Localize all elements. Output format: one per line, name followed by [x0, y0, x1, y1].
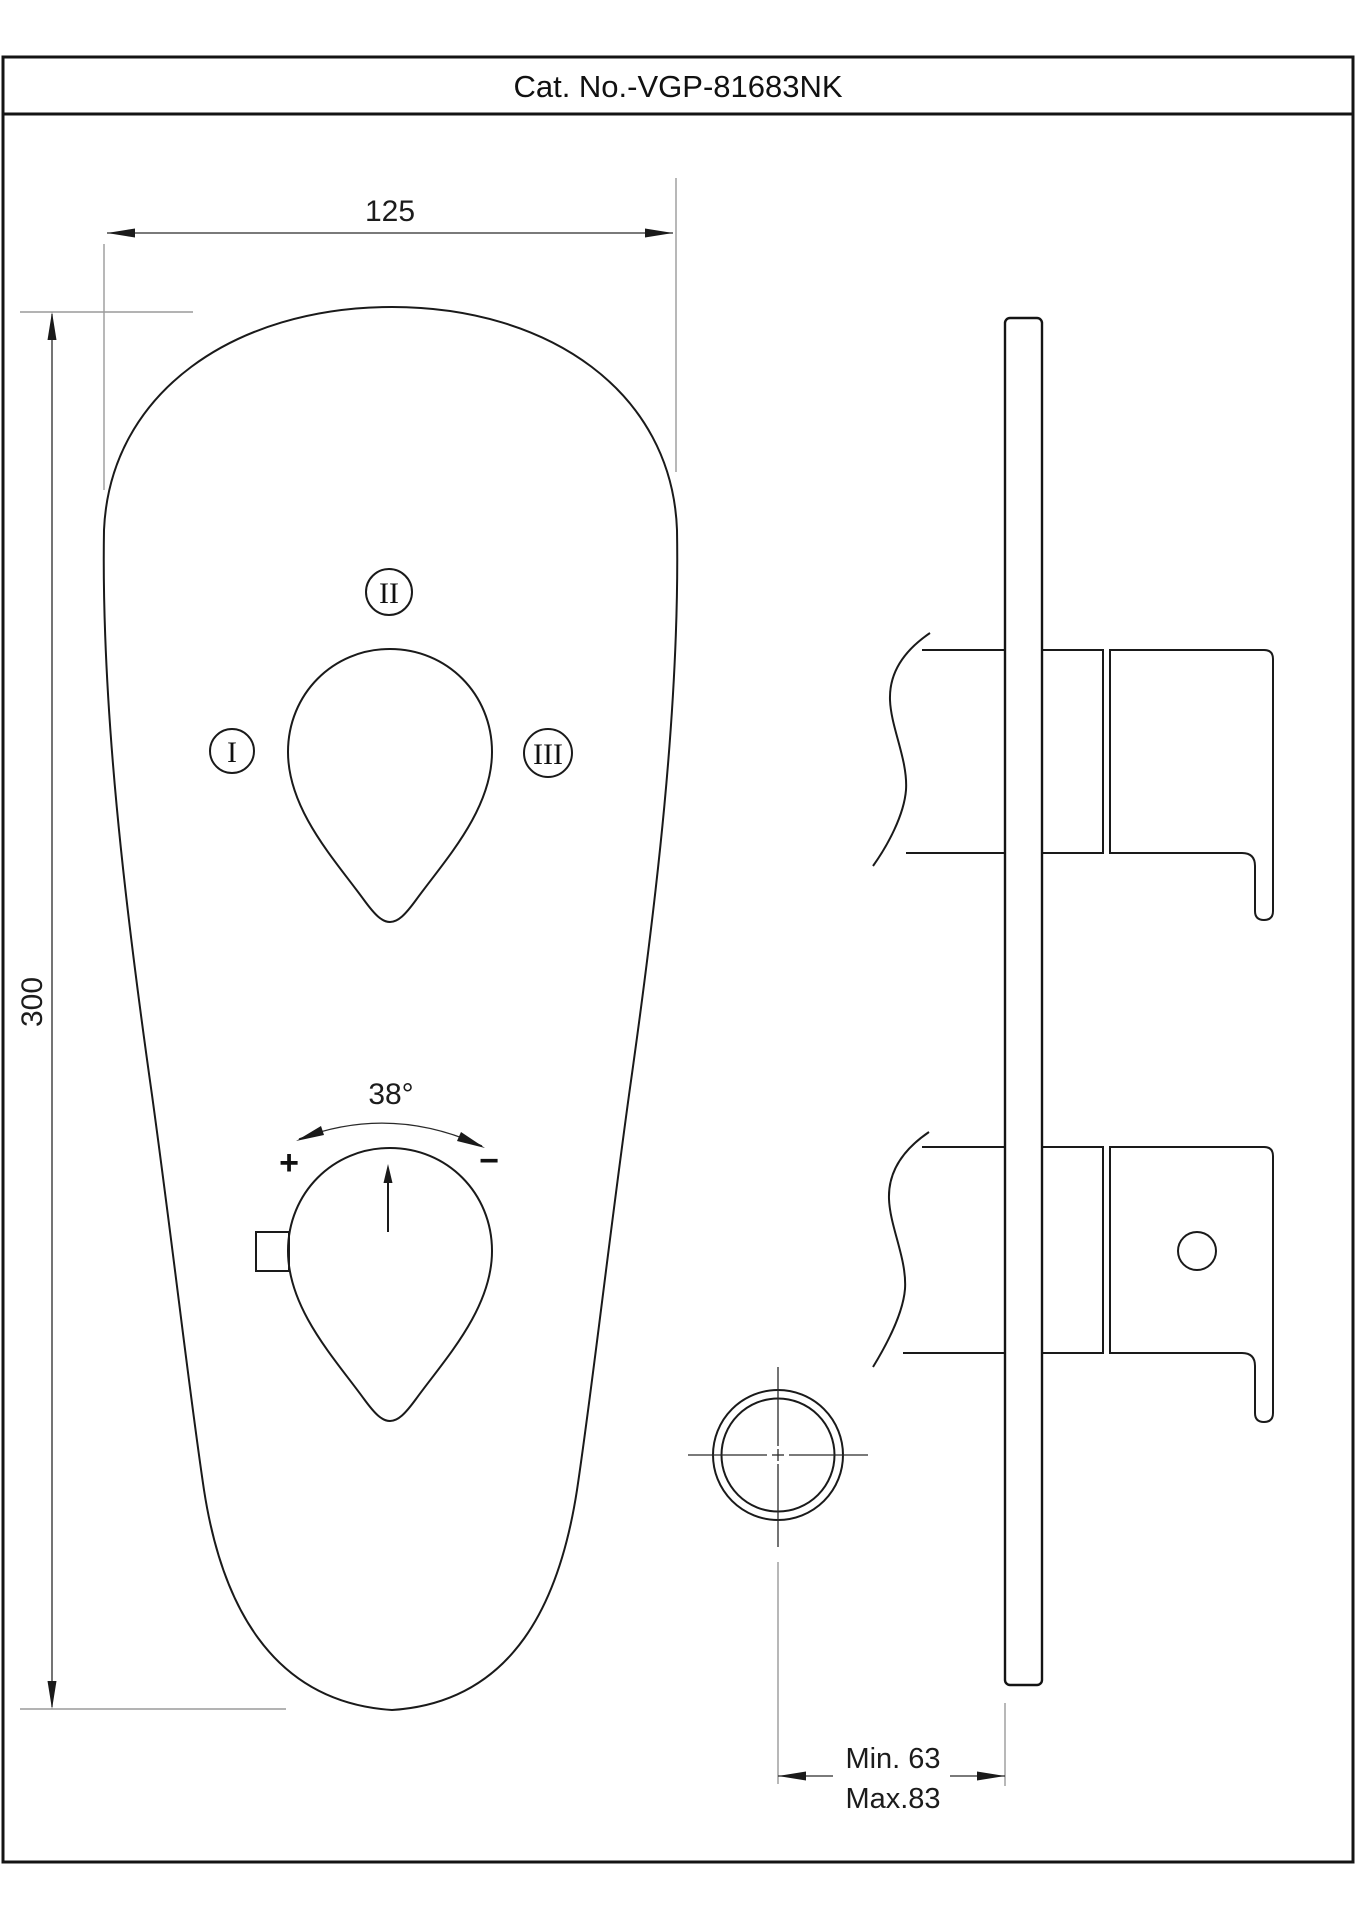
front-view: 125 300 II I III 38° + −: [16, 178, 677, 1710]
upper-bracket-body: [1110, 650, 1273, 920]
lower-spacer-block: [1042, 1147, 1103, 1353]
front-plate-outline: [104, 307, 678, 1710]
plus-label: +: [279, 1144, 299, 1182]
knob-pointer-arrowhead: [384, 1164, 393, 1183]
height-dimension-label: 300: [16, 977, 49, 1027]
position-label-1: I: [227, 736, 237, 769]
position-label-3: III: [533, 738, 563, 771]
height-arrow-top: [48, 312, 57, 340]
rotation-arrow-left: [296, 1126, 324, 1141]
depth-arrow-left: [778, 1772, 806, 1781]
drawing-title: Cat. No.-VGP-81683NK: [513, 69, 842, 104]
depth-max-label: Max.83: [845, 1783, 940, 1815]
width-arrow-right: [645, 229, 673, 238]
width-dimension-label: 125: [365, 195, 415, 228]
rotation-arc: [299, 1123, 482, 1146]
lower-wall-break-line: [873, 1132, 929, 1367]
upper-knob: [288, 649, 492, 922]
knob-side-tab: [256, 1232, 289, 1271]
lower-knob: [288, 1148, 492, 1421]
rotation-angle-label: 38°: [368, 1078, 413, 1111]
depth-arrow-right: [977, 1772, 1005, 1781]
width-arrow-left: [107, 229, 135, 238]
upper-wall-break-line: [873, 633, 930, 866]
bracket-button-hole: [1178, 1232, 1216, 1270]
height-arrow-bottom: [48, 1681, 57, 1709]
lower-bracket-body: [1110, 1147, 1273, 1422]
minus-label: −: [479, 1142, 499, 1180]
trim-plate: [1005, 318, 1042, 1685]
sheet-border: [3, 57, 1353, 1862]
technical-drawing-sheet: Cat. No.-VGP-81683NK 125 300 II I III 38…: [0, 0, 1356, 1920]
position-label-2: II: [379, 577, 399, 610]
side-view: Min. 63 Max.83: [688, 318, 1273, 1815]
upper-spacer-block: [1042, 650, 1103, 853]
pipe-centerlines: [688, 1367, 868, 1547]
depth-min-label: Min. 63: [845, 1743, 940, 1775]
